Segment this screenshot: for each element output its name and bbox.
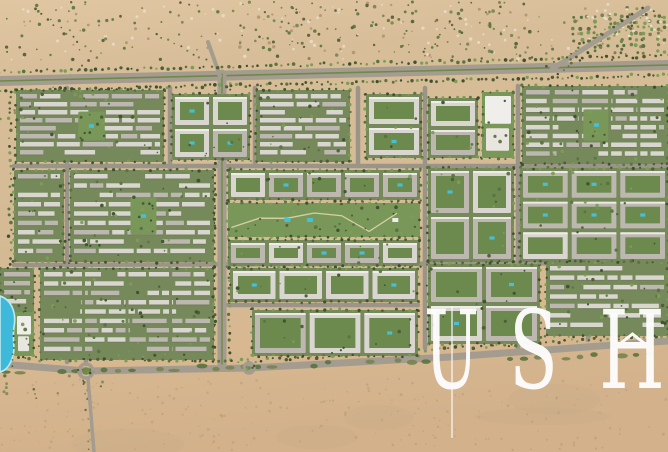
block-edge-tree: [263, 168, 266, 171]
block-edge-tree: [271, 168, 273, 170]
desert-shrub: [324, 9, 325, 10]
pool: [252, 283, 257, 286]
verge-tree: [10, 173, 12, 175]
block-edge-tree: [63, 226, 65, 228]
block-tree: [384, 284, 386, 286]
desert-shrub: [101, 381, 104, 384]
block-edge-tree: [241, 266, 243, 268]
block-edge-tree: [235, 239, 237, 241]
townhouse-row: [553, 108, 575, 113]
block-edge-tree: [170, 152, 172, 154]
sand-speckle: [320, 401, 322, 403]
block-tree: [566, 285, 570, 289]
lagoon-tree: [13, 347, 15, 349]
watermark-letter-s: S: [509, 287, 558, 414]
block-edge-tree: [233, 167, 236, 170]
block-edge-tree: [552, 262, 554, 264]
townhouse-row: [18, 202, 41, 207]
sand-speckle: [66, 416, 67, 417]
verge-tree: [280, 83, 283, 86]
desert-shrub: [34, 393, 36, 395]
block-tree: [314, 225, 318, 229]
street-tree: [214, 174, 216, 176]
verge-tree: [504, 58, 508, 62]
block-tree: [558, 265, 561, 268]
block-tree: [21, 116, 24, 119]
block-edge-tree: [595, 336, 597, 338]
tent-structure: [650, 25, 653, 27]
sand-speckle: [268, 393, 270, 395]
shrub-row: [173, 43, 175, 45]
block-edge-tree: [42, 170, 44, 172]
roof-shadow: [44, 295, 70, 296]
track-shrub: [82, 380, 84, 382]
townhouse-row: [154, 193, 168, 198]
block-tree: [97, 127, 99, 129]
townhouse-row: [106, 110, 134, 115]
townhouse-row: [607, 275, 617, 280]
block-tree: [73, 93, 76, 96]
roof-shadow: [132, 323, 166, 324]
block-edge-tree: [428, 270, 430, 272]
townhouse-row: [260, 126, 281, 131]
roof-shadow: [20, 131, 56, 132]
verge-tree: [274, 63, 277, 66]
block-edge-tree: [546, 277, 548, 279]
roof-shadow: [145, 99, 159, 100]
block-tree: [535, 105, 538, 108]
desert-shrub: [470, 2, 472, 4]
block-edge-tree: [348, 96, 351, 99]
verge-tree: [8, 101, 11, 104]
verge-tree: [224, 360, 227, 363]
block-tree: [600, 269, 603, 272]
block-edge-tree: [518, 246, 521, 249]
park-tree: [142, 202, 145, 205]
block-edge-tree: [526, 167, 529, 170]
block-edge-tree: [75, 261, 78, 264]
block-edge-tree: [394, 156, 396, 158]
desert-shrub: [509, 11, 512, 14]
block-tree: [576, 130, 578, 132]
block-edge-tree: [226, 220, 229, 223]
block-tree: [526, 142, 529, 145]
block-edge-tree: [269, 203, 272, 206]
desert-shrub: [383, 27, 385, 29]
desert-shrub: [72, 6, 76, 10]
block-tree: [487, 254, 491, 258]
tent-structure: [607, 3, 610, 5]
block-tree: [409, 318, 411, 320]
block-edge-tree: [602, 262, 604, 264]
townhouse-row: [162, 239, 190, 244]
block-edge-tree: [256, 90, 258, 92]
verge-tree: [630, 73, 633, 76]
block-edge-tree: [310, 309, 312, 311]
block-edge-tree: [327, 240, 329, 242]
verge-tree: [462, 60, 465, 63]
block-tree: [318, 177, 321, 180]
verge-tree: [656, 74, 659, 77]
sand-speckle: [366, 383, 369, 386]
block-edge-tree: [32, 347, 35, 350]
block-tree: [365, 228, 367, 230]
street-tree: [620, 19, 623, 22]
block-tree: [120, 189, 122, 191]
verge-tree: [114, 68, 117, 71]
roof-shadow: [198, 235, 210, 236]
block-edge-tree: [532, 168, 535, 171]
block-edge-tree: [192, 262, 194, 264]
block-edge-tree: [291, 238, 293, 240]
desert-shrub: [404, 33, 406, 35]
block-edge-tree: [427, 247, 429, 249]
block-edge-tree: [330, 308, 333, 311]
sand-speckle: [201, 434, 203, 436]
block-edge-tree: [427, 104, 430, 107]
block-edge-tree: [579, 84, 581, 86]
block-tree: [349, 231, 352, 234]
verge-tree: [401, 61, 403, 63]
roof-shadow: [18, 244, 30, 245]
block-edge-tree: [561, 167, 564, 170]
park-tree: [588, 110, 592, 114]
block-edge-tree: [420, 170, 422, 172]
block-edge-tree: [420, 143, 422, 145]
desert-shrub: [332, 6, 334, 8]
block-edge-tree: [175, 267, 178, 270]
block-tree: [540, 111, 543, 114]
block-edge-tree: [395, 308, 398, 311]
verge-tree: [632, 57, 635, 60]
block-edge-tree: [147, 359, 150, 362]
street-tree: [604, 29, 606, 31]
orchard-tree: [572, 40, 575, 43]
block-edge-tree: [263, 201, 265, 203]
townhouse-row: [318, 142, 331, 147]
track-shrub: [84, 393, 86, 395]
block-tree: [576, 140, 579, 143]
block-edge-tree: [14, 104, 17, 107]
townhouse-row: [200, 337, 210, 342]
verge-tree: [528, 57, 531, 60]
townhouse-row: [616, 116, 627, 121]
desert-shrub: [5, 392, 8, 395]
block-tree: [305, 294, 308, 297]
roof-shadow: [74, 235, 109, 236]
block-edge-tree: [334, 169, 336, 171]
block-edge-tree: [105, 162, 107, 164]
block-edge-tree: [326, 169, 328, 171]
desert-shrub: [313, 44, 316, 47]
verge-tree: [143, 67, 145, 69]
orchard-tree: [587, 27, 591, 31]
roof-highlight: [523, 171, 568, 173]
block-tree: [136, 291, 139, 294]
townhouse-row: [260, 110, 285, 115]
block-edge-tree: [372, 92, 374, 94]
townhouse-row: [44, 347, 71, 352]
desert-shrub: [105, 19, 108, 22]
block-edge-tree: [416, 339, 418, 341]
track-shrub: [86, 399, 88, 401]
verge-tree: [360, 63, 362, 65]
block-edge-tree: [39, 351, 41, 353]
desert-shrub: [528, 30, 532, 34]
block-edge-tree: [125, 169, 128, 172]
block-edge-tree: [214, 158, 216, 160]
block-edge-tree: [212, 315, 215, 318]
block-edge-tree: [250, 160, 252, 162]
track-shrub: [84, 409, 86, 411]
block-edge-tree: [21, 161, 24, 164]
block-edge-tree: [538, 278, 541, 281]
block-edge-tree: [38, 337, 41, 340]
sand-speckle: [13, 440, 15, 442]
verge-tree: [203, 66, 205, 68]
block-tree: [89, 245, 91, 247]
courtyard: [236, 178, 260, 192]
block-edge-tree: [366, 299, 369, 302]
block-edge-tree: [513, 238, 515, 240]
block-edge-tree: [316, 309, 319, 312]
shrub-row: [186, 50, 188, 52]
street-tree: [228, 347, 230, 349]
roof-shadow: [194, 277, 205, 278]
block-tree: [50, 133, 53, 136]
roof-shadow: [116, 147, 152, 148]
roof-shadow: [148, 295, 160, 296]
verge-tree: [278, 356, 281, 359]
verge-tree: [392, 81, 395, 84]
orchard-tree: [636, 51, 639, 54]
desert-shrub: [611, 59, 613, 61]
block-edge-tree: [426, 217, 429, 220]
desert-shrub: [584, 7, 587, 10]
block-edge-tree: [471, 261, 473, 263]
block-tree: [300, 117, 302, 119]
block-tree: [95, 240, 98, 243]
roof-shadow: [260, 139, 292, 140]
sand-speckle: [437, 426, 439, 428]
courtyard: [528, 237, 563, 254]
townhouse-row: [297, 102, 320, 107]
park-tree: [89, 114, 91, 116]
verge-tree: [430, 80, 433, 83]
block-edge-tree: [249, 169, 251, 171]
roof-shadow: [72, 323, 82, 324]
block-tree: [394, 205, 398, 209]
roundabout-island: [82, 367, 90, 375]
block-edge-tree: [14, 147, 16, 149]
roof-highlight: [269, 173, 303, 175]
block-edge-tree: [417, 300, 420, 303]
desert-shrub: [522, 3, 525, 6]
roof-shadow: [91, 295, 119, 296]
street-tree: [568, 65, 570, 67]
block-edge-tree: [297, 203, 300, 206]
block-tree: [331, 108, 333, 110]
block-tree: [259, 97, 263, 101]
verge-tree: [416, 79, 419, 82]
street-tree: [570, 62, 573, 65]
desert-shrub: [26, 10, 29, 13]
street-tree: [557, 73, 559, 75]
block-tree: [504, 320, 507, 323]
block-tree: [337, 149, 340, 152]
sand-speckle: [209, 383, 211, 385]
sand-speckle: [67, 431, 69, 433]
sand-speckle: [662, 433, 665, 436]
townhouse-row: [20, 150, 43, 155]
block-edge-tree: [660, 262, 662, 264]
block-edge-tree: [214, 205, 216, 207]
verge-tree: [138, 86, 142, 90]
verge-tree: [576, 76, 579, 79]
desert-shrub: [449, 10, 452, 13]
block-edge-tree: [276, 202, 278, 204]
desert-shrub: [190, 17, 193, 20]
block-tree: [33, 117, 36, 120]
verge-tree: [8, 213, 11, 216]
tent-structure: [632, 30, 635, 32]
desert-shrub: [477, 41, 480, 44]
townhouse-row: [182, 202, 205, 207]
roof-shadow: [112, 99, 142, 100]
desert-shrub: [451, 24, 453, 26]
sand-speckle: [82, 419, 84, 421]
desert-shrub: [338, 8, 341, 11]
block-edge-tree: [293, 308, 296, 311]
verge-tree: [571, 339, 573, 341]
block-edge-tree: [48, 169, 51, 172]
block-edge-tree: [226, 184, 229, 187]
block-edge-tree: [69, 359, 72, 362]
roof-shadow: [642, 103, 664, 104]
verge-tree: [9, 129, 12, 132]
block-edge-tree: [208, 93, 210, 95]
roof-shadow: [44, 323, 69, 324]
sand-speckle: [414, 413, 416, 415]
roof-shadow: [316, 123, 337, 124]
block-edge-tree: [258, 267, 260, 269]
sand-speckle: [601, 447, 603, 449]
desert-shrub: [35, 397, 37, 399]
block-edge-tree: [514, 210, 516, 212]
verge-tree: [379, 80, 381, 82]
sand-speckle: [400, 439, 401, 440]
block-edge-tree: [448, 156, 451, 159]
block-edge-tree: [587, 86, 589, 88]
block-edge-tree: [262, 198, 265, 201]
townhouse-row: [100, 102, 134, 107]
sand-speckle: [111, 389, 113, 391]
park-tree: [146, 229, 148, 231]
block-edge-tree: [418, 348, 420, 350]
roof-shadow: [88, 225, 106, 226]
block-edge-tree: [212, 176, 214, 178]
block-tree: [38, 230, 40, 232]
block-edge-tree: [221, 158, 224, 161]
verge-tree: [596, 75, 599, 78]
sand-speckle: [390, 403, 391, 404]
tent-structure: [648, 20, 651, 22]
desert-shrub: [286, 30, 288, 32]
sand-speckle: [72, 384, 75, 387]
block-edge-tree: [428, 255, 430, 257]
block-edge-tree: [243, 267, 246, 270]
street-tree: [641, 7, 644, 10]
roof-shadow: [117, 277, 146, 278]
block-edge-tree: [141, 358, 143, 360]
block-edge-tree: [313, 236, 316, 239]
block-edge-tree: [164, 89, 167, 92]
roof-shadow: [162, 244, 190, 245]
orchard-tree: [571, 27, 575, 31]
block-edge-tree: [417, 331, 419, 333]
roof-shadow: [70, 107, 96, 108]
block-tree: [631, 93, 635, 97]
orchard-tree: [573, 19, 577, 23]
sand-speckle: [157, 396, 160, 399]
verge-tree: [285, 358, 288, 361]
orchard-tree: [663, 26, 667, 30]
block-edge-tree: [377, 199, 379, 201]
block-edge-tree: [359, 268, 361, 270]
block-tree: [205, 195, 207, 197]
verge-tree: [63, 69, 66, 72]
block-edge-tree: [227, 256, 229, 258]
roof-shadow: [4, 286, 30, 287]
lagoon-tree: [10, 296, 13, 299]
block-edge-tree: [456, 158, 458, 160]
townhouse-row: [44, 272, 63, 277]
block-edge-tree: [537, 262, 540, 265]
block-edge-tree: [70, 197, 72, 199]
street-tree: [214, 207, 216, 209]
block-tree: [241, 252, 243, 254]
shrub-row: [156, 33, 158, 35]
roundabout-tree: [241, 367, 243, 369]
street-tree: [545, 65, 548, 68]
block-tree: [400, 232, 403, 235]
desert-shrub: [523, 27, 526, 30]
block-edge-tree: [120, 88, 122, 90]
block-edge-tree: [421, 108, 423, 110]
block-edge-tree: [38, 268, 41, 271]
lagoon-tree: [12, 330, 14, 332]
block-tree: [226, 122, 228, 124]
block-tree: [351, 214, 353, 216]
townhouse-row: [74, 174, 108, 179]
sand-speckle: [648, 426, 650, 428]
sand-speckle: [392, 444, 395, 447]
desert-shrub: [263, 19, 264, 20]
sand-speckle: [375, 432, 376, 433]
verge-tree: [297, 357, 299, 359]
block-tree: [360, 207, 363, 210]
roadside-clump: [128, 369, 136, 372]
block-edge-tree: [98, 262, 100, 264]
block-tree: [308, 105, 311, 108]
verge-tree: [195, 86, 198, 89]
townhouse-row: [557, 116, 575, 121]
desert-shrub: [365, 4, 368, 7]
block-edge-tree: [386, 156, 388, 158]
block-edge-tree: [71, 90, 73, 92]
block-edge-tree: [169, 169, 171, 171]
block-tree: [193, 315, 196, 318]
